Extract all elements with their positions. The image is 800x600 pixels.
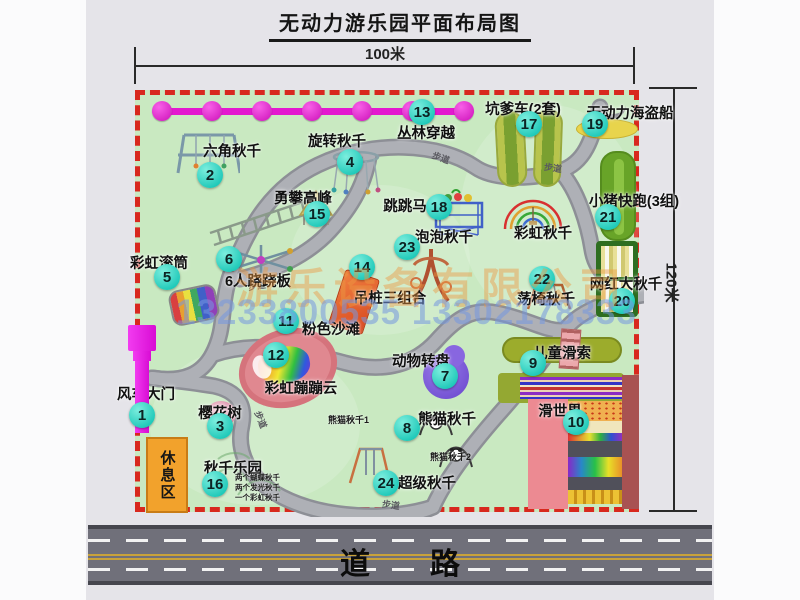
badge-19: 19: [582, 111, 608, 137]
badge-13: 13: [409, 99, 435, 125]
badge-3: 3: [207, 413, 233, 439]
swing-park-details: 两个蝴蝶秋千 两个发光秋千 一个彩虹秋千: [235, 473, 280, 503]
path-label: 步道: [381, 497, 401, 512]
label-23: 泡泡秋千: [415, 226, 473, 247]
label-4: 旋转秋千: [308, 130, 366, 151]
road: 道 路: [88, 525, 712, 585]
badge-2: 2: [197, 162, 223, 188]
badge-1: 1: [129, 402, 155, 428]
swing-park-detail-3: 一个彩虹秋千: [235, 493, 280, 503]
slide-band-dark2: [568, 477, 622, 490]
label-2: 六角秋千: [203, 140, 261, 161]
plan-photo: 无动力游乐园平面布局图 100米 120米: [86, 0, 714, 600]
slide-red-strip: [622, 375, 639, 509]
windmill-gate-step: [133, 351, 151, 361]
chain-node: [302, 101, 322, 121]
dimension-line-top: [135, 65, 635, 67]
label-24: 超级秋千: [398, 472, 456, 493]
label-12: 彩虹蹦蹦云: [265, 377, 338, 398]
badge-16: 16: [202, 471, 228, 497]
slide-band-wavy: [568, 490, 622, 504]
panda-swing-1-label: 熊猫秋千1: [328, 413, 369, 426]
slide-world-icon: [498, 373, 640, 513]
badge-17: 17: [516, 111, 542, 137]
chain-node: [352, 101, 372, 121]
label-18: 跳跳马: [383, 195, 427, 216]
page-title: 无动力游乐园平面布局图: [269, 7, 531, 42]
chain-node: [202, 101, 222, 121]
slide-lanes-top: [520, 377, 638, 399]
badge-7: 7: [432, 363, 458, 389]
road-label: 道 路: [88, 539, 712, 583]
dimension-tick-right-bottom: [649, 510, 697, 512]
badge-5: 5: [154, 264, 180, 290]
badge-4: 4: [337, 149, 363, 175]
rest-area-label: 休息区: [157, 450, 178, 501]
panda-swing-2-label: 熊猫秋千2: [430, 450, 471, 463]
swing-park-detail-2: 两个发光秋千: [235, 483, 280, 493]
rest-area: 休息区: [146, 437, 188, 513]
badge-15: 15: [304, 201, 330, 227]
dimension-tick-right-top: [649, 87, 697, 89]
dimension-width-label: 100米: [135, 43, 635, 64]
label-13: 丛林穿越: [397, 122, 455, 143]
swing-park-detail-1: 两个蝴蝶秋千: [235, 473, 280, 483]
dimension-height-label: 120米: [662, 262, 683, 302]
badge-24: 24: [373, 470, 399, 496]
slide-band-dark: [568, 441, 622, 457]
badge-12: 12: [263, 342, 289, 368]
watermark-phone: 13233800535 13302178333: [176, 293, 637, 333]
badge-10: 10: [563, 409, 589, 435]
badge-8: 8: [394, 415, 420, 441]
chain-node: [252, 101, 272, 121]
windmill-gate-icon: [128, 325, 156, 351]
badge-18: 18: [426, 194, 452, 220]
title-wrap: 无动力游乐园平面布局图: [86, 7, 714, 42]
slide-band-gradient: [568, 457, 622, 477]
badge-9: 9: [520, 350, 546, 376]
chain-node: [152, 101, 172, 121]
label-rainbow-swing: 彩虹秋千: [514, 222, 572, 243]
path-label: 步道: [543, 160, 563, 175]
chain-node: [454, 101, 474, 121]
badge-21: 21: [595, 204, 621, 230]
label-8: 熊猫秋千: [418, 408, 476, 429]
